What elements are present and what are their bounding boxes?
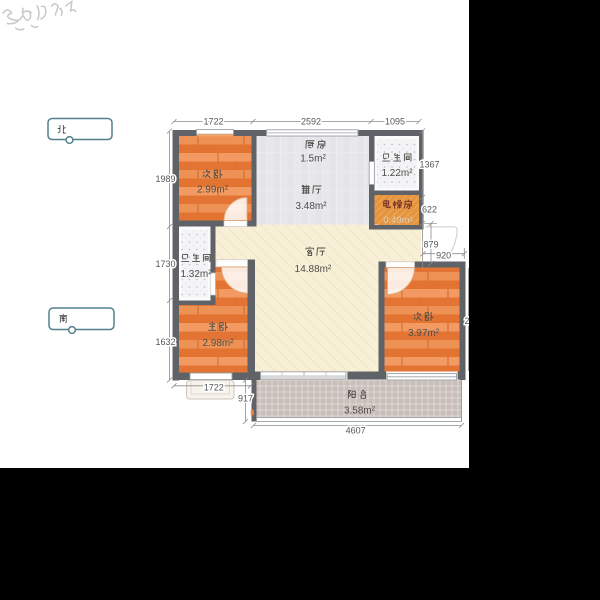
svg-text:2: 2 [464,316,469,326]
svg-text:879: 879 [423,239,438,249]
svg-text:1722: 1722 [203,116,223,126]
svg-text:1095: 1095 [385,116,405,126]
svg-text:3.58m²: 3.58m² [344,405,376,416]
svg-text:1632: 1632 [155,337,175,347]
svg-text:622: 622 [422,205,437,215]
svg-text:0.49m²: 0.49m² [383,215,413,226]
svg-text:1989: 1989 [155,174,175,184]
svg-text:3.97m²: 3.97m² [408,328,440,339]
svg-text:920: 920 [436,251,451,261]
svg-text:1.22m²: 1.22m² [381,168,413,179]
svg-text:2.98m²: 2.98m² [202,338,234,349]
svg-text:2.99m²: 2.99m² [197,184,229,195]
svg-text:2592: 2592 [301,116,321,126]
svg-text:1367: 1367 [419,159,439,169]
svg-text:1.5m²: 1.5m² [300,153,326,164]
svg-text:4607: 4607 [346,425,366,435]
svg-text:1730: 1730 [155,259,175,269]
svg-text:1722: 1722 [204,383,224,393]
svg-text:917: 917 [238,394,253,404]
svg-text:3.48m²: 3.48m² [295,201,327,212]
svg-text:1.32m²: 1.32m² [180,269,212,280]
svg-text:14.88m²: 14.88m² [295,264,332,275]
